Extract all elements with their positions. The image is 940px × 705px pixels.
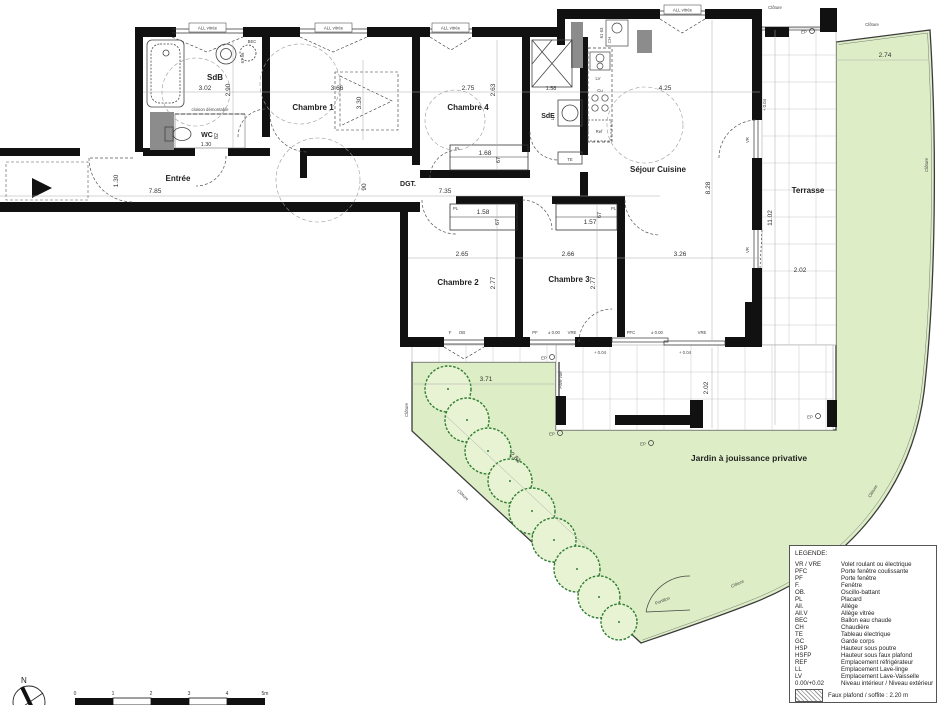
legend-value: Emplacement Lave-linge — [841, 666, 936, 673]
legend-key: HSP — [795, 645, 841, 652]
all-vitree-label: ALL vitrée — [198, 26, 218, 31]
legend-value: Allège — [841, 603, 936, 610]
dim-sde-w: 1.58 — [546, 86, 557, 92]
legend-value: Porte fenêtre — [841, 575, 936, 582]
cloture-label: Clôture — [768, 5, 782, 10]
dim-jardin-w: 3.71 — [480, 376, 493, 383]
ch-label: CH — [607, 37, 612, 43]
room-dgt: DGT. — [400, 181, 416, 188]
legend-value: Oscillo-battant — [841, 589, 936, 596]
legend-key: 0.00/+0.02 — [795, 680, 841, 687]
legend-value: Niveau intérieur / Niveau extérieur — [841, 680, 936, 687]
dim-sdb-w: 3.02 — [199, 85, 212, 92]
legend-row: CHChaudière — [795, 624, 936, 631]
room-chambre1: Chambre 1 — [292, 103, 334, 112]
bec-label: BEC — [248, 39, 257, 44]
room-sdb: SdB — [207, 73, 223, 82]
legend-key: All.V — [795, 610, 841, 617]
ref-label: Ref — [596, 129, 603, 134]
legend-row: BECBallon eau chaude — [795, 617, 936, 624]
wc-toilet — [173, 128, 191, 141]
room-wc: WC — [201, 132, 213, 139]
dim-sejour-w: 4.25 — [659, 85, 672, 92]
dim-chambre4-h: 2.63 — [490, 83, 497, 96]
legend-row: OB.Oscillo-battant — [795, 589, 936, 596]
scale-3: 3 — [188, 691, 191, 697]
legend-row: 0.00/+0.02Niveau intérieur / Niveau exté… — [795, 680, 936, 687]
dim-chambre2-w: 2.65 — [456, 251, 469, 258]
dim-chambre4-w: 2.75 — [462, 85, 475, 92]
legend-title: LEGENDE: — [795, 550, 936, 557]
legend-row: LVEmplacement Lave-Vaisselle — [795, 673, 936, 680]
legend-row: HSFPHauteur sous faux plafond — [795, 652, 936, 659]
room-chambre4: Chambre 4 — [447, 103, 489, 112]
level-ext-3: + 0.04 — [762, 98, 767, 111]
all-vitree-label: ALL vitrée — [441, 26, 461, 31]
dim-sejour-h: 8.28 — [705, 181, 712, 194]
legend-key: REF — [795, 659, 841, 666]
dim-chambre3-placard: 1.57 — [584, 219, 597, 226]
legend-value: Garde corps — [841, 638, 936, 645]
cloture-label: Clôture — [865, 22, 879, 27]
legend-box: LEGENDE: VR / VREVolet roulant ou électr… — [789, 545, 937, 703]
legend-key: PL — [795, 596, 841, 603]
legend-key: TE — [795, 631, 841, 638]
f-label: F — [449, 330, 452, 335]
scale-4: 4 — [226, 691, 229, 697]
room-chambre3: Chambre 3 — [548, 275, 590, 284]
all-vitree-label: ALL vitrée — [673, 8, 693, 13]
legend-key: LL — [795, 666, 841, 673]
entry-arrow — [32, 178, 52, 198]
ob-label: OB — [459, 330, 465, 335]
bec-dims: 67 56 — [240, 52, 245, 63]
pl-label: PL — [453, 206, 459, 211]
legend-key: PFC — [795, 568, 841, 575]
dim-entree-wid: 1.30 — [113, 174, 120, 187]
room-chambre2: Chambre 2 — [437, 278, 479, 287]
legend-key: VR / VRE — [795, 561, 841, 568]
scale-1: 1 — [112, 691, 115, 697]
vr-label-1: VR — [745, 137, 750, 143]
dim-chambre3-h: 2.77 — [590, 276, 597, 289]
all-vitree-label: ALL vitrée — [324, 26, 344, 31]
kitchen-sink — [590, 52, 610, 70]
legend-key: F. — [795, 582, 841, 589]
legend-key: PF — [795, 575, 841, 582]
entry-marker — [6, 162, 88, 200]
north-label: N — [21, 676, 27, 685]
dim-sejour-w2: 3.26 — [674, 251, 687, 258]
legend-value: Hauteur sous poutre — [841, 645, 936, 652]
legend-row: PFPorte fenêtre — [795, 575, 936, 582]
legend-row: PFCPorte fenêtre coulissante — [795, 568, 936, 575]
cloture-label: Clôture — [404, 402, 409, 416]
dim-dgt-len: 7.35 — [439, 188, 452, 195]
legend-value: Tableau électrique — [841, 631, 936, 638]
dim-jardin-top: 2.74 — [879, 52, 892, 59]
legend-value: Hauteur sous faux plafond — [841, 652, 936, 659]
legend-value: Allège vitrée — [841, 610, 936, 617]
dim-entree-len: 7.85 — [149, 188, 162, 195]
legend-key: OB. — [795, 589, 841, 596]
legend-value: Emplacement réfrigérateur — [841, 659, 936, 666]
dim-chambre2-placard: 1.58 — [477, 209, 490, 216]
scale-0: 0 — [74, 691, 77, 697]
legend-row: F.Fenêtre — [795, 582, 936, 589]
legend-row: HSPHauteur sous poutre — [795, 645, 936, 652]
pare-vue-label: Pare vue — [558, 371, 563, 389]
cloture-label: Clôture — [456, 488, 470, 502]
floor-plan-page: ALL vitrée ALL vitrée ALL vitrée ALL vit… — [0, 0, 940, 705]
cloture-label: Clôture — [924, 157, 929, 171]
legend-value: Fenêtre — [841, 582, 936, 589]
dim-chambre3-w: 2.66 — [562, 251, 575, 258]
dim-terrasse-wid: 2.02 — [794, 267, 807, 274]
dim-wc-w: 1.30 — [201, 142, 212, 148]
level-ext-1: + 0.04 — [594, 350, 607, 355]
legend-row: VR / VREVolet roulant ou électrique — [795, 561, 936, 568]
dim-chambre3-placard-d: 67 — [597, 212, 603, 218]
ep-label: EP — [801, 30, 807, 35]
lv-label: LV — [596, 76, 601, 81]
room-jardin: Jardin à jouissance privative — [691, 453, 807, 463]
turning-circles — [162, 44, 683, 222]
pl-label: PL — [611, 206, 617, 211]
legend-value: Emplacement Lave-Vaisselle — [841, 673, 936, 680]
dim-terrasse-len: 11.02 — [767, 210, 774, 226]
ep-label: EP — [807, 415, 813, 420]
north-compass: N — [13, 676, 45, 705]
hob-burner — [592, 95, 598, 101]
ep-label: EP — [549, 432, 555, 437]
legend-key: GC — [795, 638, 841, 645]
legend-row: PLPlacard — [795, 596, 936, 603]
legend-row: All.Allège — [795, 603, 936, 610]
pf-label: PF — [532, 330, 538, 335]
scale-2: 2 — [150, 691, 153, 697]
windows — [172, 11, 762, 359]
legend-row: GCGarde corps — [795, 638, 936, 645]
legend-key: All. — [795, 603, 841, 610]
vre-label: VRE — [568, 330, 577, 335]
ep-label: EP — [640, 442, 646, 447]
dim-sdb-h: 2.90 — [225, 83, 232, 96]
washing-machine — [558, 100, 582, 126]
legend-key: HSFP — [795, 652, 841, 659]
door-swings — [89, 109, 757, 342]
cu-label: Cu — [597, 88, 603, 93]
scale-5m: 5m — [262, 691, 269, 697]
legend-row: All.VAllège vitrée — [795, 610, 936, 617]
dim-chambre2-h: 2.77 — [490, 276, 497, 289]
ll-label: LL — [550, 115, 555, 120]
legend-row: LLEmplacement Lave-linge — [795, 666, 936, 673]
vr-label-2: VR — [745, 247, 750, 253]
dim-chambre4-placard-d: 67 — [496, 157, 502, 163]
legend-row: TETableau électrique — [795, 631, 936, 638]
ep-label: EP — [541, 356, 547, 361]
dim-wc-d: 82 — [214, 133, 220, 139]
pfc-label: PFC — [627, 330, 636, 335]
ch-dims: 61 63 — [599, 27, 604, 38]
dim-chambre4-placard: 1.68 — [479, 150, 492, 157]
legend-soffit-label: Faux plafond / soffite : 2.20 m — [828, 692, 908, 699]
legend-key: LV — [795, 673, 841, 680]
legend-soffit-row: Faux plafond / soffite : 2.20 m — [795, 689, 936, 702]
level-zero-2: ± 0.00 — [651, 330, 664, 335]
level-zero-1: ± 0.00 — [548, 330, 561, 335]
dim-chambre2-placard-d: 67 — [495, 219, 501, 225]
legend-value: Chaudière — [841, 624, 936, 631]
pl-label: PL — [455, 146, 461, 151]
soffit-hatch-swatch — [795, 689, 823, 702]
level-ext-2: + 0.04 — [679, 350, 692, 355]
room-entree: Entrée — [166, 174, 191, 183]
dim-terrasse-wid2: 2.02 — [703, 381, 710, 394]
te-label: TE — [567, 157, 573, 162]
dim-dgt-wid: 90 — [361, 183, 368, 191]
dim-chambre1-h: 3.30 — [356, 96, 363, 109]
dim-chambre1-w: 3.66 — [331, 85, 344, 92]
room-sejour: Séjour Cuisine — [630, 165, 687, 174]
scale-bar: 0 1 2 3 4 5m — [74, 691, 269, 705]
legend-value: Ballon eau chaude — [841, 617, 936, 624]
legend-value: Porte fenêtre coulissante — [841, 568, 936, 575]
legend-value: Placard — [841, 596, 936, 603]
cloison-label: cloison démontable — [191, 107, 229, 112]
legend-row: REFEmplacement réfrigérateur — [795, 659, 936, 666]
vre-label-2: VRE — [698, 330, 707, 335]
room-terrasse: Terrasse — [792, 186, 825, 195]
legend-value: Volet roulant ou électrique — [841, 561, 936, 568]
legend-key: CH — [795, 624, 841, 631]
legend-key: BEC — [795, 617, 841, 624]
